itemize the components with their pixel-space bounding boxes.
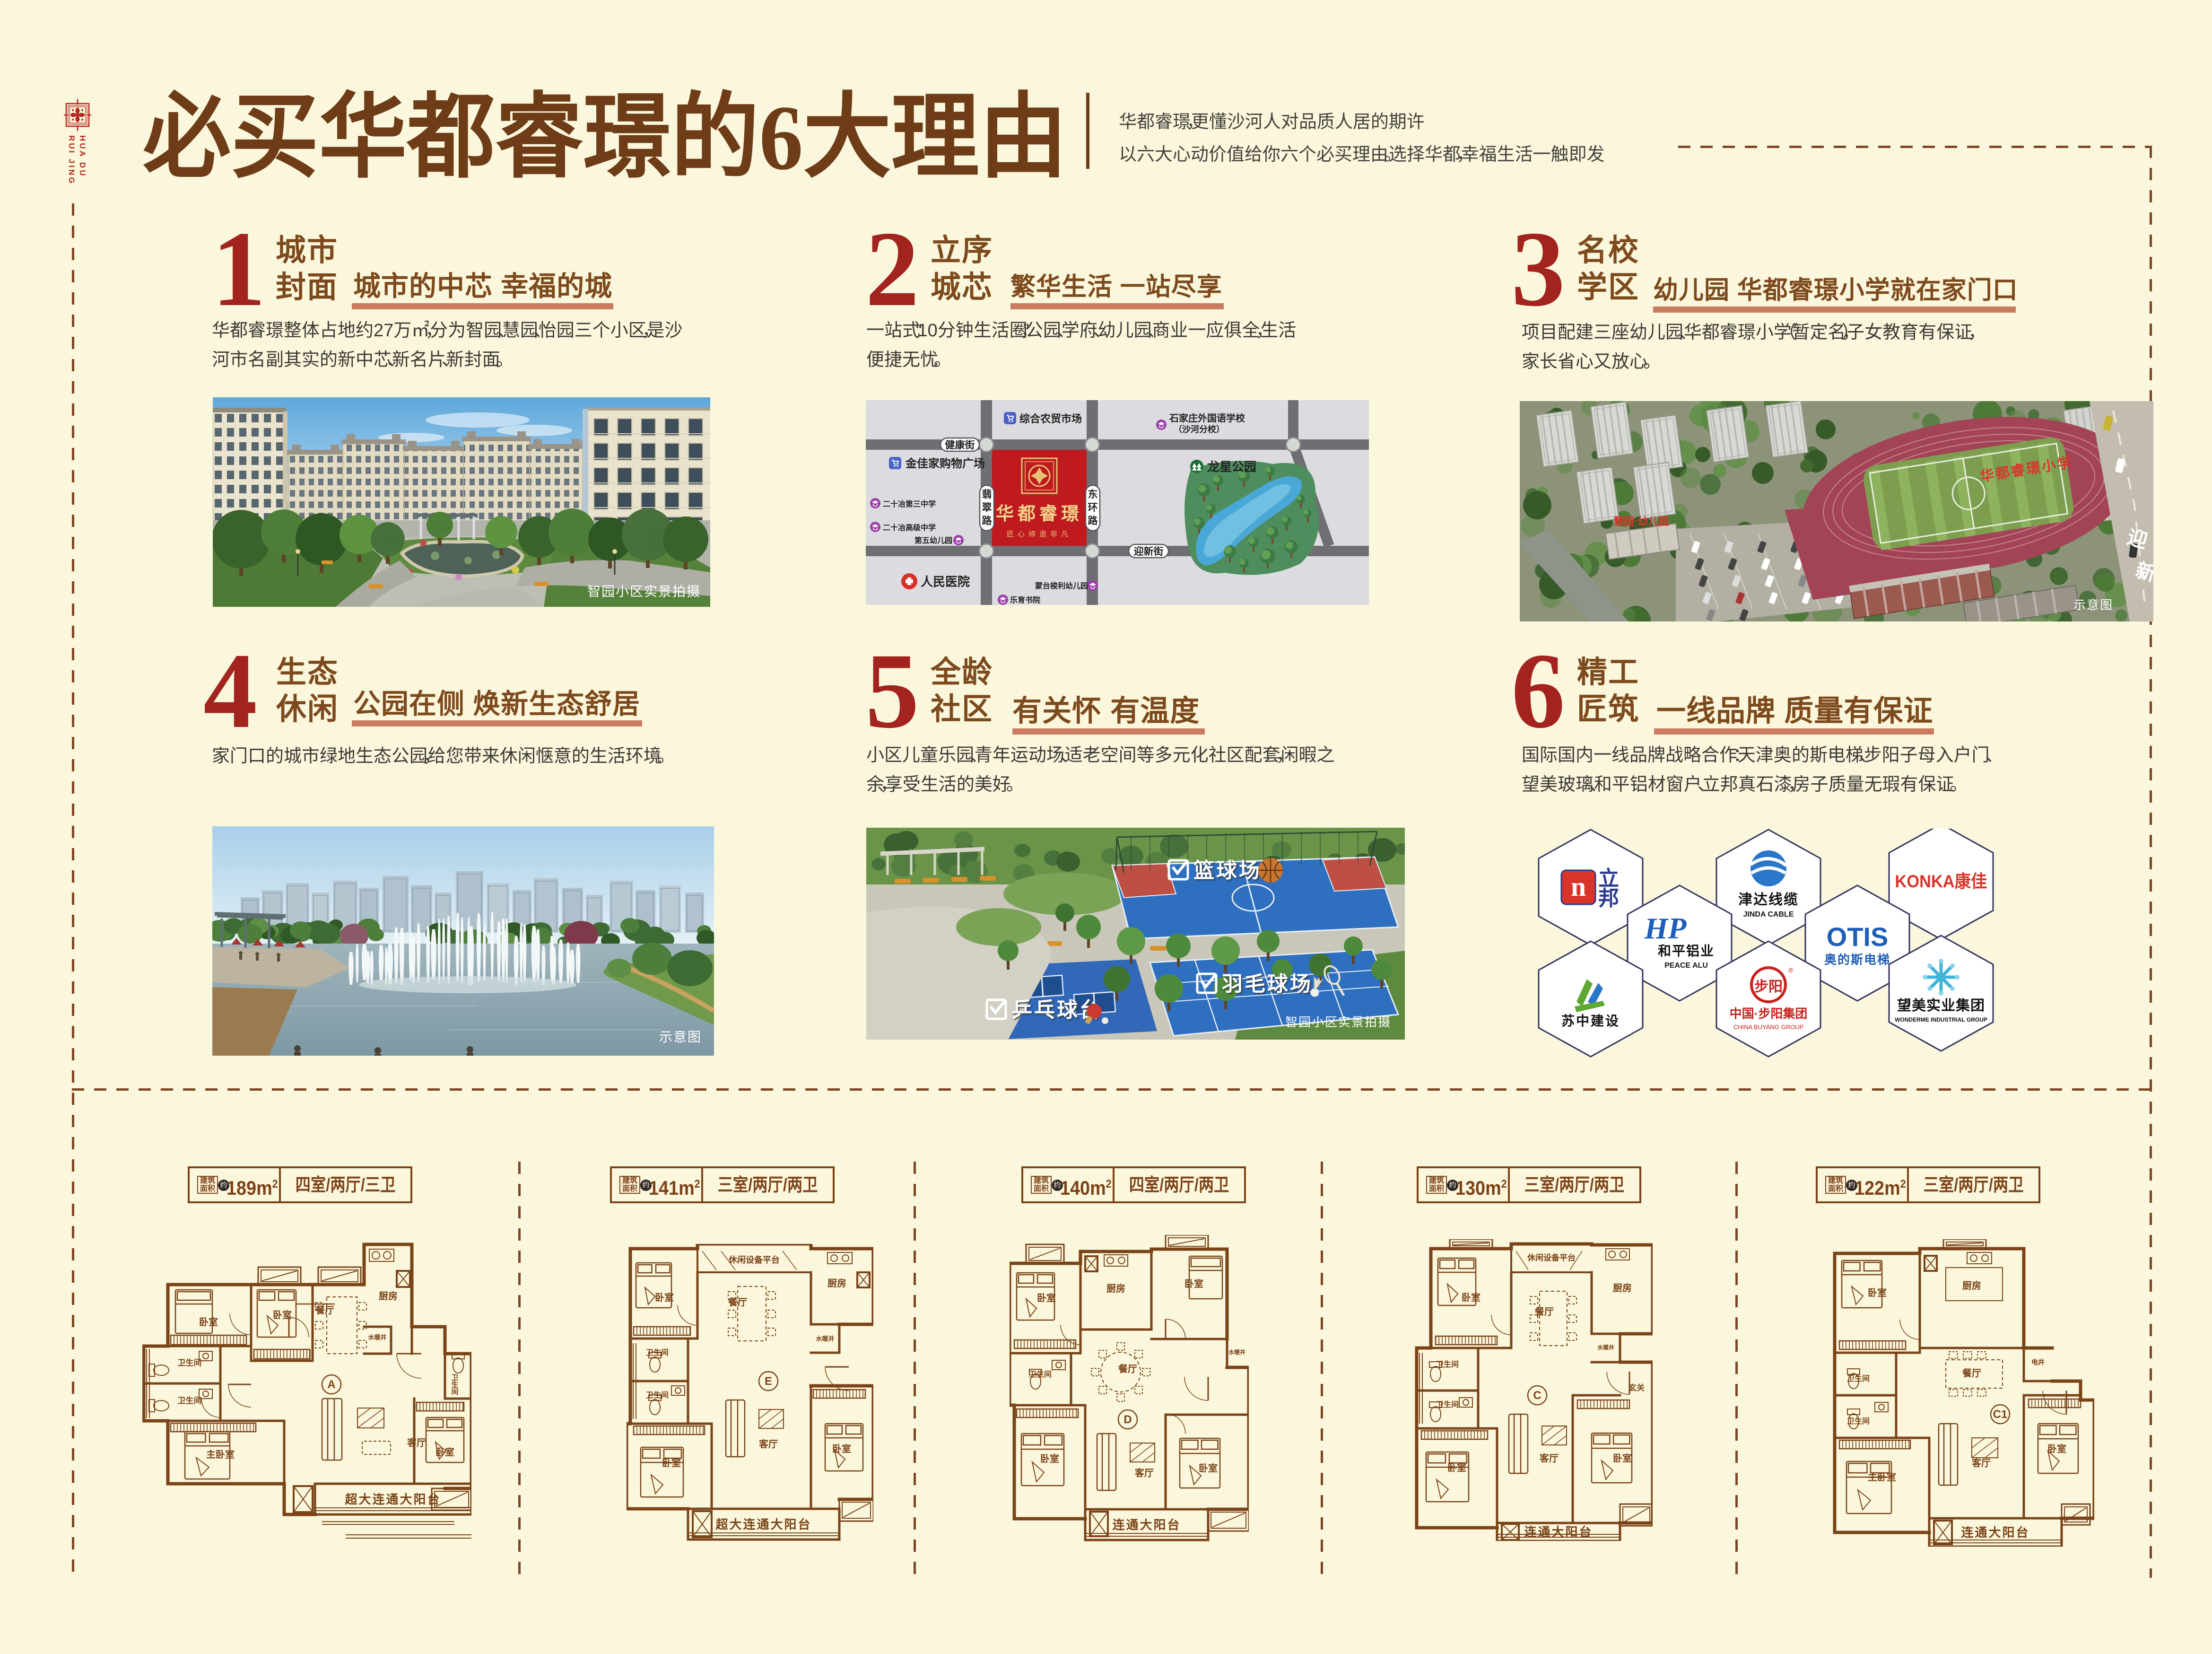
svg-text:休闲设备平台: 休闲设备平台 — [1527, 1253, 1576, 1262]
svg-text:乐育书院: 乐育书院 — [1010, 595, 1040, 604]
svg-text:龙星公园: 龙星公园 — [1207, 460, 1256, 474]
svg-text:二十冶高级中学: 二十冶高级中学 — [883, 523, 936, 532]
svg-text:中国·步阳集团: 中国·步阳集团 — [1730, 1006, 1808, 1021]
svg-text:卧室: 卧室 — [1040, 1453, 1059, 1464]
svg-text:卧室: 卧室 — [1037, 1292, 1056, 1304]
svg-text:客厅: 客厅 — [758, 1438, 778, 1450]
svg-text:第五幼儿园: 第五幼儿园 — [914, 536, 952, 545]
svg-text:水暖井: 水暖井 — [1597, 1344, 1614, 1351]
svg-text:卫生间: 卫生间 — [178, 1396, 202, 1405]
svg-text:石家庄外国语学校: 石家庄外国语学校 — [1169, 412, 1245, 424]
svg-text:厨房: 厨房 — [827, 1278, 846, 1289]
svg-text:路: 路 — [1088, 515, 1098, 526]
svg-text:卧室: 卧室 — [199, 1316, 218, 1328]
svg-text:连通大阳台: 连通大阳台 — [1112, 1518, 1181, 1532]
svg-text:（沙河分校）: （沙河分校） — [1178, 424, 1220, 434]
svg-text:玄关: 玄关 — [1629, 1383, 1645, 1392]
svg-text:望美实业集团: 望美实业集团 — [1897, 998, 1985, 1014]
svg-text:卫生间: 卫生间 — [178, 1358, 202, 1367]
svg-text:厨房: 厨房 — [1613, 1282, 1632, 1294]
svg-text:翡: 翡 — [982, 489, 992, 500]
svg-text:超大连通大阳台: 超大连通大阳台 — [715, 1517, 811, 1531]
svg-text:客厅: 客厅 — [1134, 1467, 1154, 1479]
svg-text:东: 东 — [1088, 489, 1098, 500]
svg-text:餐厅: 餐厅 — [1118, 1363, 1137, 1374]
svg-text:蒙台梭利幼儿园: 蒙台梭利幼儿园 — [1035, 581, 1088, 590]
svg-text:E: E — [765, 1375, 772, 1388]
svg-text:人民医院: 人民医院 — [921, 575, 970, 589]
svg-text:电井: 电井 — [2031, 1358, 2045, 1366]
svg-text:路: 路 — [982, 515, 993, 526]
svg-text:慧园·幼儿园: 慧园·幼儿园 — [1613, 516, 1669, 527]
svg-text:连通大阳台: 连通大阳台 — [1524, 1525, 1593, 1539]
svg-text:PEACE ALU: PEACE ALU — [1664, 962, 1708, 970]
svg-text:和平铝业: 和平铝业 — [1658, 944, 1715, 958]
svg-text:OTIS: OTIS — [1827, 922, 1889, 952]
svg-text:连通大阳台: 连通大阳台 — [1961, 1525, 2029, 1540]
svg-text:卧室: 卧室 — [1199, 1462, 1218, 1474]
svg-text:客厅: 客厅 — [407, 1437, 426, 1448]
svg-text:环: 环 — [1088, 502, 1098, 513]
svg-text:卧室: 卧室 — [1462, 1292, 1480, 1303]
svg-text:羽毛球场: 羽毛球场 — [1222, 972, 1313, 996]
svg-text:水暖井: 水暖井 — [816, 1335, 834, 1342]
svg-text:卧室: 卧室 — [1868, 1287, 1887, 1298]
svg-text:华都睿璟: 华都睿璟 — [996, 504, 1083, 524]
svg-text:金佳家购物广场: 金佳家购物广场 — [905, 457, 985, 470]
svg-text:C1: C1 — [1993, 1408, 2008, 1421]
svg-text:津达线缆: 津达线缆 — [1738, 892, 1799, 908]
svg-text:餐厅: 餐厅 — [1535, 1306, 1554, 1317]
svg-text:迎新街: 迎新街 — [1134, 546, 1164, 557]
svg-text:JINDA CABLE: JINDA CABLE — [1743, 910, 1794, 919]
svg-text:奥的斯电梯: 奥的斯电梯 — [1824, 953, 1890, 967]
svg-text:CHINA BUYANG GROUP: CHINA BUYANG GROUP — [1733, 1024, 1804, 1031]
svg-text:篮球场: 篮球场 — [1193, 859, 1262, 882]
svg-text:餐厅: 餐厅 — [315, 1304, 334, 1316]
svg-text:HP: HP — [1644, 911, 1687, 945]
svg-text:苏中建设: 苏中建设 — [1561, 1014, 1620, 1028]
svg-text:n: n — [1571, 871, 1586, 902]
svg-text:A: A — [327, 1378, 335, 1391]
svg-text:餐厅: 餐厅 — [1962, 1367, 1981, 1379]
svg-text:卫生间: 卫生间 — [451, 1374, 459, 1396]
svg-text:D: D — [1123, 1413, 1132, 1426]
svg-text:水暖井: 水暖井 — [1228, 1348, 1245, 1356]
svg-text:智园小区实景拍摄: 智园小区实景拍摄 — [587, 584, 701, 599]
svg-text:客厅: 客厅 — [1539, 1453, 1559, 1464]
svg-text:WONDERME INDUSTRIAL GROUP: WONDERME INDUSTRIAL GROUP — [1895, 1016, 1987, 1023]
svg-text:健康街: 健康街 — [945, 439, 975, 451]
svg-text:卧室: 卧室 — [1613, 1453, 1632, 1464]
svg-text:休闲设备平台: 休闲设备平台 — [728, 1255, 780, 1265]
svg-text:匠心缔造非凡: 匠心缔造非凡 — [1007, 530, 1072, 538]
svg-text:二十冶第三中学: 二十冶第三中学 — [883, 499, 936, 508]
svg-text:®: ® — [1788, 966, 1794, 974]
svg-text:邦: 邦 — [1598, 887, 1619, 910]
svg-text:厨房: 厨房 — [1106, 1283, 1125, 1294]
svg-text:示意图: 示意图 — [2073, 598, 2113, 612]
svg-text:超大连通大阳台: 超大连通大阳台 — [345, 1492, 441, 1506]
svg-text:KONKA康佳: KONKA康佳 — [1895, 872, 1987, 891]
svg-text:翠: 翠 — [982, 502, 992, 513]
svg-text:步阳: 步阳 — [1754, 979, 1783, 995]
svg-text:厨房: 厨房 — [1962, 1280, 1981, 1291]
svg-text:水暖井: 水暖井 — [368, 1334, 386, 1341]
svg-text:卧室: 卧室 — [1184, 1278, 1203, 1289]
svg-text:综合农贸市场: 综合农贸市场 — [1019, 413, 1082, 425]
svg-text:智园小区实景拍摄: 智园小区实景拍摄 — [1285, 1015, 1391, 1029]
svg-text:厨房: 厨房 — [379, 1290, 398, 1302]
svg-text:示意图: 示意图 — [659, 1030, 702, 1044]
svg-text:C: C — [1533, 1389, 1541, 1402]
svg-text:客厅: 客厅 — [1971, 1457, 1991, 1469]
